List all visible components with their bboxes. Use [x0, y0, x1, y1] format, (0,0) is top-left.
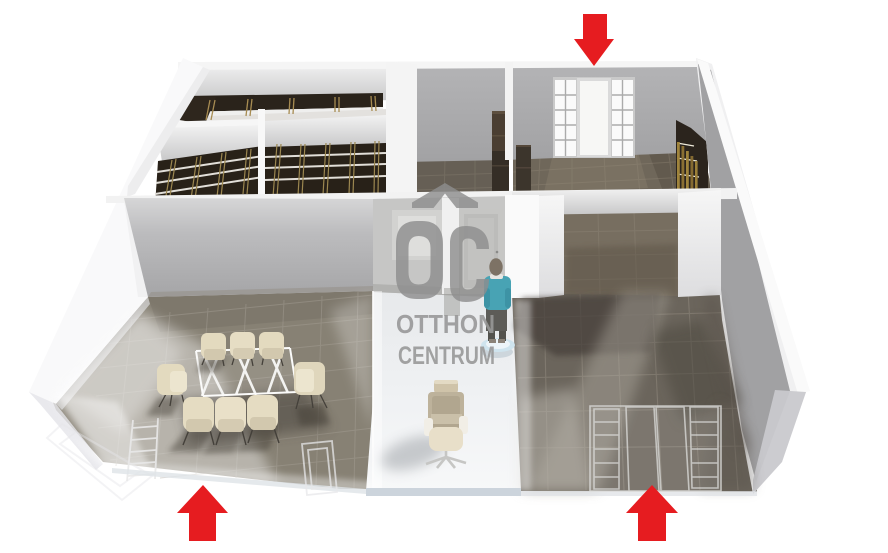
- svg-text:CENTRUM: CENTRUM: [398, 342, 495, 370]
- svg-text:OTTHON: OTTHON: [396, 309, 495, 339]
